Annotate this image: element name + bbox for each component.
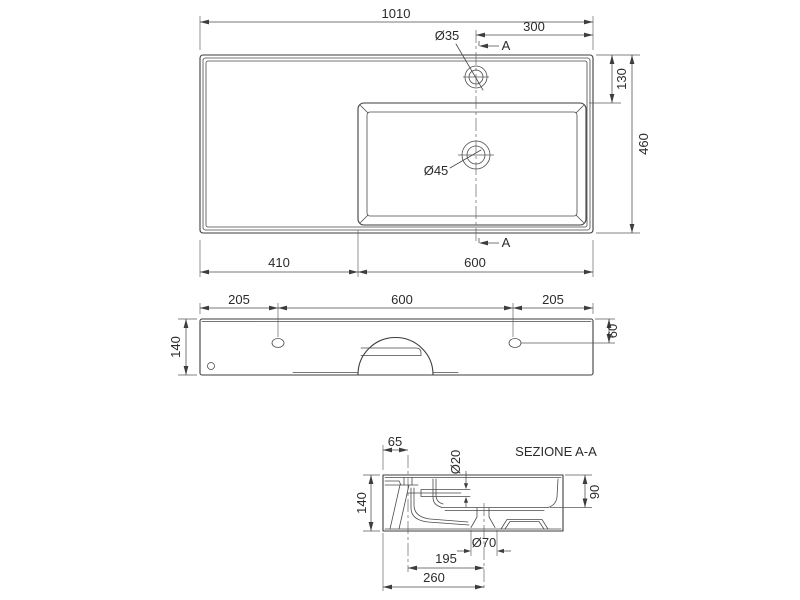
- dim-hole-positions: 205 600 205: [200, 292, 593, 337]
- fixing-hole-small: [208, 363, 215, 370]
- section-title: SEZIONE A-A: [515, 444, 597, 459]
- countertop-outline: [200, 55, 593, 233]
- dim-faucet-offset: 65: [383, 434, 408, 470]
- dim-overall-width-text: 1010: [382, 6, 411, 21]
- section-view: SEZIONE A-A: [354, 434, 602, 591]
- mounting-hole-right: [509, 339, 521, 348]
- dim-hole-spacing-text: 600: [391, 292, 413, 307]
- dim-section-height: 140: [354, 475, 380, 531]
- dim-section-height-text: 140: [354, 492, 369, 514]
- dim-left-section-text: 410: [268, 255, 290, 270]
- dim-faucet-offset-text: 300: [523, 19, 545, 34]
- dim-bottom-widths: 410 600: [200, 230, 593, 277]
- dim-front-height: 140: [168, 319, 197, 375]
- section-marker-a-top: A: [479, 38, 511, 53]
- dim-faucet-offset-right: 300: [476, 19, 593, 35]
- label-drain-hole-dia: Ø45: [424, 150, 481, 178]
- dim-wall-to-drain: 260: [383, 533, 484, 591]
- dim-deck-depth-text: 130: [614, 68, 629, 90]
- dim-basin-section-text: 600: [464, 255, 486, 270]
- drain-dia-text: Ø45: [424, 163, 449, 178]
- faucet-dia-text: Ø35: [435, 28, 460, 43]
- washbasin-drawing: 1010 300 Ø35 A 130 4: [0, 0, 800, 600]
- technical-drawing-sheet: 1010 300 Ø35 A 130 4: [0, 0, 800, 600]
- dim-hole-top-offset-text: 60: [605, 324, 620, 338]
- dim-hole-top-offset: 60: [521, 319, 620, 343]
- section-marker-a-top-text: A: [502, 38, 511, 53]
- dim-faucet-offset-text: 65: [388, 434, 402, 449]
- dim-wall-to-drain-text: 260: [423, 570, 445, 585]
- dim-faucet-to-drain-text: 195: [435, 551, 457, 566]
- dim-overflow-dia: Ø20: [448, 450, 468, 507]
- dim-front-height-text: 140: [168, 336, 183, 358]
- section-profile: [383, 475, 563, 531]
- dim-faucet-to-drain: 195: [408, 551, 484, 568]
- dim-overall-depth-text: 460: [636, 133, 651, 155]
- dim-left-hole-offset-text: 205: [228, 292, 250, 307]
- mounting-hole-left: [272, 339, 284, 348]
- top-view: 1010 300 Ø35 A 130 4: [200, 6, 651, 277]
- basin-outline: [358, 103, 586, 225]
- dim-right-hole-offset-text: 205: [542, 292, 564, 307]
- dim-drain-dia-text: Ø70: [472, 535, 497, 550]
- dim-bowl-depth-text: 90: [587, 485, 602, 499]
- overflow-arch: [358, 338, 433, 375]
- section-marker-a-bottom: A: [479, 235, 511, 250]
- section-marker-a-bottom-text: A: [502, 235, 511, 250]
- front-view: 205 600 205 140 60: [168, 292, 620, 375]
- dim-overflow-dia-text: Ø20: [448, 450, 463, 475]
